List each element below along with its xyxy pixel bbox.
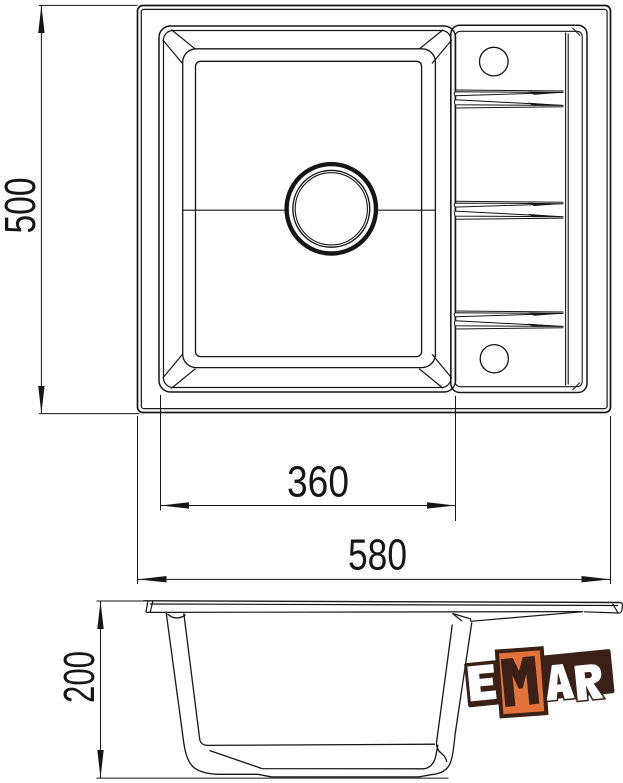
svg-text:580: 580: [348, 531, 407, 580]
svg-text:500: 500: [0, 178, 45, 234]
svg-text:200: 200: [55, 651, 104, 703]
svg-text:360: 360: [287, 458, 349, 507]
